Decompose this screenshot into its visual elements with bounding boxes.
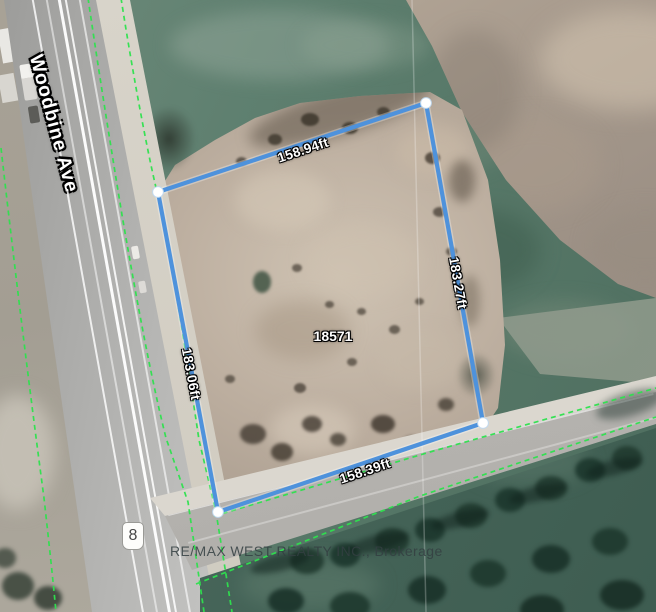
- route-8-shield-label: 8: [129, 527, 138, 545]
- parcel-id-label: 18571: [314, 328, 353, 344]
- brokerage-watermark: RE/MAX WEST REALTY INC., Brokerage: [170, 543, 443, 559]
- map-canvas[interactable]: Woodbine Ave 158.94ft 183.27ft 158.39ft …: [0, 0, 656, 612]
- route-8-shield: 8: [122, 522, 144, 550]
